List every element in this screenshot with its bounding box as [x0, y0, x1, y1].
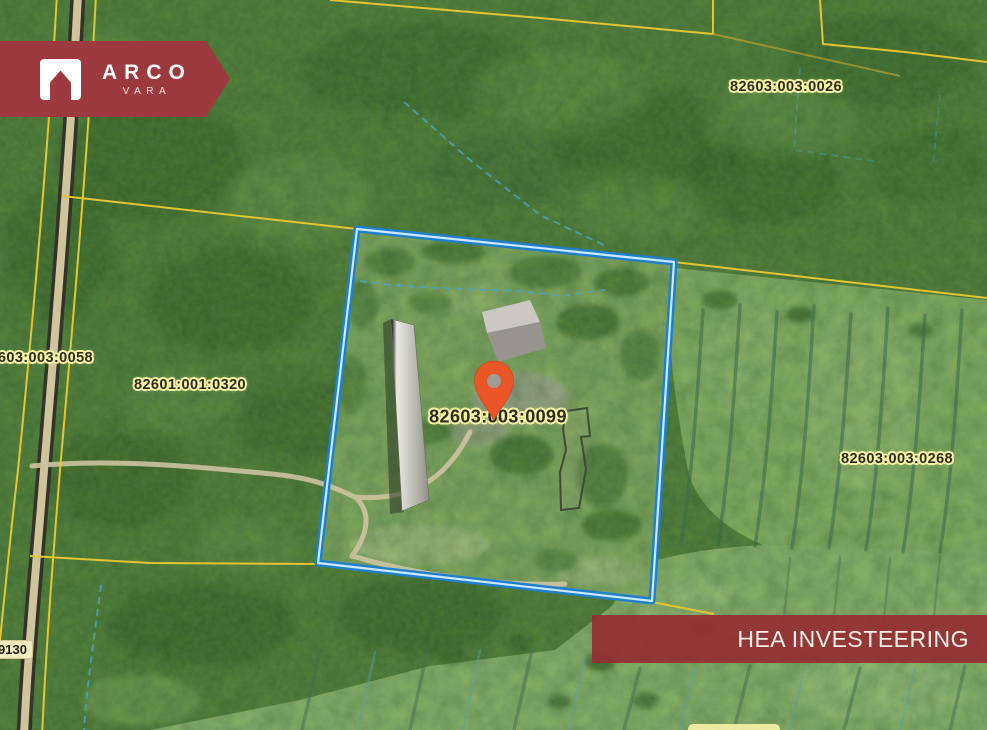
listing-owner-label: HEA INVESTEERING — [737, 626, 969, 653]
brand-name: ARCO — [102, 62, 192, 83]
parcel-label-0026: 82603:003:0026 — [730, 79, 842, 95]
arco-house-logo-icon — [40, 59, 81, 100]
road-number-label: 9130 — [0, 640, 33, 659]
parcel-label-0268: 82603:003:0268 — [841, 451, 953, 467]
parcel-label-0320: 82601:001:0320 — [134, 377, 246, 393]
brand-banner: ARCO VARA — [0, 41, 206, 117]
partial-parcel-label — [688, 724, 780, 730]
brand-banner-arrow — [206, 41, 230, 117]
brand-tagline: VARA — [102, 87, 192, 97]
location-pin-icon[interactable] — [473, 360, 515, 427]
parcel-label-0058: 82603:003:0058 — [0, 350, 93, 366]
brand-text: ARCO VARA — [102, 62, 192, 97]
listing-owner-banner: HEA INVESTEERING — [592, 615, 987, 663]
listing-map-image: 82603:003:0026 82603:003:0058 82601:001:… — [0, 0, 987, 730]
